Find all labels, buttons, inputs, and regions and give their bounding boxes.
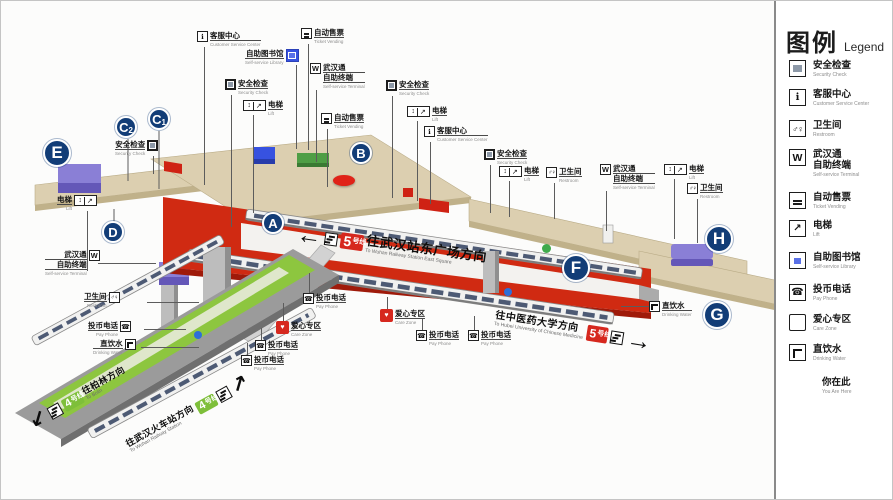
wuhantong-terminal-icon: [789, 149, 806, 166]
line4-badge: 4号线: [60, 390, 85, 412]
security-icon: [484, 149, 495, 160]
callout-lift2: 电梯Lift: [243, 100, 283, 116]
callout-lift2: 电梯Lift: [407, 106, 447, 122]
callout-wuhantong: 武汉通自助终端Self-service Terminal: [45, 250, 100, 276]
you-are-here-marker: [333, 175, 355, 186]
leader-line: [308, 44, 309, 150]
callout-ticket: 自动售票Ticket Vending: [321, 113, 364, 129]
callout-water: 直饮水Drinking Water: [93, 339, 136, 355]
exit-marker-a: A: [262, 212, 284, 234]
water-icon: [125, 339, 136, 350]
wuhantong-icon: [310, 63, 321, 74]
leader-line: [147, 302, 199, 303]
water-icon: [649, 301, 660, 312]
callout-phone: 投币电话Pay Phone: [255, 340, 298, 356]
pay-phone-icon: [789, 284, 806, 301]
leader-line: [141, 347, 199, 348]
exit-marker-h: H: [705, 225, 733, 253]
leader-line: [606, 191, 607, 231]
callout-security: 安全检查Security Check: [115, 140, 158, 156]
callout-care: 爱心专区Care Zone: [276, 321, 321, 337]
callout-care: 爱心专区Care Zone: [380, 309, 425, 325]
restroom-icon: [546, 167, 557, 178]
ticket-icon: [321, 113, 332, 124]
leader-line: [204, 47, 205, 185]
callout-library: 自助图书馆Self-service Library: [245, 49, 299, 65]
leader-line: [231, 95, 232, 227]
care-zone-icon: [789, 314, 806, 331]
exit-marker-b: B: [350, 142, 372, 164]
leader-line: [253, 115, 254, 213]
legend-title-en: Legend: [844, 40, 884, 54]
legend-item-wuhantong: 武汉通自助终端Self-service Terminal: [789, 149, 893, 178]
callout-security: 安全检查Security Check: [386, 80, 429, 96]
restroom-icon: [687, 183, 698, 194]
callout-restroom: 卫生间Restroom: [687, 183, 723, 199]
legend-title: 图例 Legend: [786, 23, 884, 58]
customer-service-icon: [789, 89, 806, 106]
service-icon: [197, 31, 208, 42]
callout-phone: 投币电话Pay Phone: [303, 293, 346, 309]
legend-panel: 图例 Legend 安全检查Security Check 客服中心Custome…: [774, 1, 893, 499]
leader-line: [387, 297, 388, 309]
callout-ticket: 自动售票Ticket Vending: [301, 28, 344, 44]
leader-line: [144, 329, 186, 330]
callout-phone: 投币电话Pay Phone: [241, 355, 284, 371]
legend-item-care: 爱心专区Care Zone: [789, 314, 893, 332]
phone-icon: [255, 340, 266, 351]
line4-badge: 4号线: [194, 393, 219, 415]
exit-marker-c2: C2: [115, 116, 137, 138]
stairs-icon: [324, 231, 339, 246]
leader-line: [430, 142, 431, 204]
leader-line: [490, 165, 491, 213]
stairs-icon: [610, 330, 625, 345]
line5-badge: 5号线: [585, 325, 609, 344]
callout-wuhantong: 武汉通自助终端Self-service Terminal: [310, 63, 365, 89]
exit-marker-e: E: [43, 139, 71, 167]
legend-item-service: 客服中心Customer Service Center: [789, 89, 893, 107]
station-map-canvas: ABC1C2DEFGH客服中心Customer Service Center自动…: [0, 0, 893, 500]
leader-line: [674, 179, 675, 239]
restroom-icon: [789, 120, 806, 137]
callout-security: 安全检查Security Check: [484, 149, 527, 165]
lift2-icon: [243, 100, 266, 111]
leader-line: [327, 129, 328, 187]
callout-water: 直饮水Drinking Water: [649, 301, 692, 317]
ticket-icon: [301, 28, 312, 39]
leader-line: [554, 183, 555, 219]
leader-line: [509, 181, 510, 217]
leader-line: [153, 156, 154, 174]
exit-marker-c1: C1: [148, 108, 170, 130]
stairs-icon: [46, 402, 64, 420]
legend-item-security: 安全检查Security Check: [789, 60, 893, 78]
you-are-here-icon: [789, 377, 815, 389]
library-icon: [286, 49, 299, 62]
leader-line: [621, 306, 649, 307]
lift2-icon: [407, 106, 430, 117]
lift2-icon: [499, 166, 522, 177]
security-check-icon: [789, 60, 806, 77]
callout-service: 客服中心Customer Service Center: [424, 126, 488, 142]
leader-line: [309, 273, 310, 293]
line5-badge: 5号线: [339, 232, 364, 251]
legend-item-water: 直饮水Drinking Water: [789, 344, 893, 362]
self-service-library-icon: [789, 252, 806, 269]
leader-line: [417, 121, 418, 201]
restroom-icon: [109, 292, 120, 303]
leader-line: [316, 90, 317, 162]
security-icon: [386, 80, 397, 91]
phone-icon: [416, 330, 427, 341]
leader-line: [283, 303, 284, 321]
leader-line: [296, 65, 297, 149]
legend-item-ticket: 自动售票Ticket Vending: [789, 192, 893, 210]
legend-item-lift: 电梯Lift: [789, 220, 893, 238]
care-icon: [380, 309, 393, 322]
wheelchair-icon: [504, 288, 512, 296]
lift2-icon: [664, 164, 687, 175]
phone-icon: [303, 293, 314, 304]
care-icon: [276, 321, 289, 334]
callout-restroom: 卫生间Restroom: [546, 167, 582, 183]
wuhantong-icon: [89, 250, 100, 261]
arrow-right-icon: →: [625, 328, 653, 354]
callout-restroom: 卫生间Restroom: [84, 292, 120, 308]
callout-security: 安全检查Security Check: [225, 79, 268, 95]
phone-icon: [468, 330, 479, 341]
callout-lift2: 电梯Lift: [664, 164, 704, 180]
legend-item-restroom: 卫生间Restroom: [789, 120, 893, 138]
arrow-left-icon: ←: [295, 223, 323, 248]
callout-wuhantong: 武汉通自助终端Self-service Terminal: [600, 164, 655, 190]
leader-line: [261, 328, 262, 340]
wheelchair-icon: [194, 331, 202, 339]
callout-phone: 投币电话Pay Phone: [88, 321, 131, 337]
callout-lift2: 电梯Lift: [57, 195, 97, 211]
service-point-dot: [542, 244, 551, 253]
exit-marker-g: G: [703, 301, 731, 329]
legend-item-you-are-here: 你在此You Are Here: [789, 377, 893, 395]
exit-marker-d: D: [102, 221, 124, 243]
exit-marker-f: F: [562, 254, 590, 282]
security-icon: [225, 79, 236, 90]
service-icon: [424, 126, 435, 137]
legend-item-library: 自助图书馆Self-service Library: [789, 252, 893, 270]
callout-lift2: 电梯Lift: [499, 166, 539, 182]
callout-phone: 投币电话Pay Phone: [416, 330, 459, 346]
security-icon: [147, 140, 158, 151]
legend-title-zh: 图例: [786, 23, 838, 58]
lift2-icon: [74, 195, 97, 206]
phone-icon: [120, 321, 131, 332]
leader-line: [474, 316, 475, 330]
leader-line: [98, 263, 156, 264]
phone-icon: [241, 355, 252, 366]
callout-phone: 投币电话Pay Phone: [468, 330, 511, 346]
callout-service: 客服中心Customer Service Center: [197, 31, 261, 47]
drinking-water-icon: [789, 344, 806, 361]
ticket-vending-icon: [789, 192, 806, 209]
leader-line: [697, 199, 698, 243]
leader-line: [247, 343, 248, 355]
leader-line: [392, 96, 393, 198]
wuhantong-icon: [600, 164, 611, 175]
escalator-icon: [789, 220, 806, 237]
legend-item-phone: 投币电话Pay Phone: [789, 284, 893, 302]
